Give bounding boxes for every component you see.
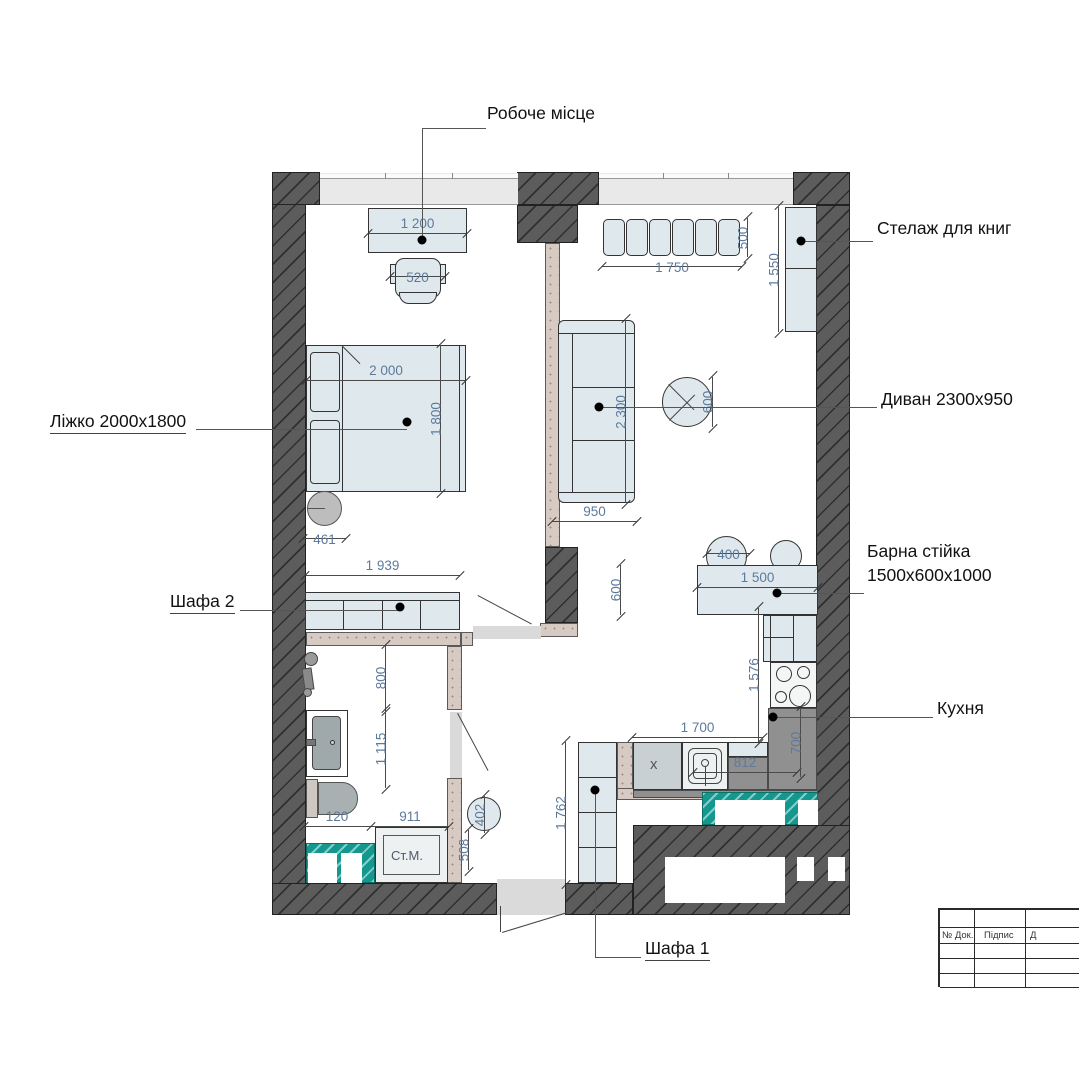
sink-tap-knob — [701, 759, 709, 767]
partition-kitchen-hall — [617, 742, 633, 792]
dim-table-diameter: 600 — [712, 377, 713, 427]
wardrobe-1-shelf — [578, 847, 617, 848]
dim-sofa-depth: 950 — [552, 521, 637, 522]
dim-shower: 800 — [385, 646, 386, 710]
leader-workplace-h — [422, 128, 486, 129]
dim-desk: 1 200 — [368, 233, 467, 234]
window-bench-cushion — [672, 219, 694, 256]
dim-chair: 520 — [390, 276, 445, 277]
washing-machine-label: Ст.М. — [391, 848, 423, 863]
sofa-armrest-bottom-line — [558, 492, 635, 493]
dim-bar-depth: 600 — [620, 565, 621, 615]
leader-bookshelf-dot — [797, 237, 806, 246]
title-block-line — [974, 910, 975, 987]
window-frame-tick — [728, 173, 729, 179]
dim-stool: 400 — [707, 553, 750, 554]
partition-bath-right-upper — [447, 646, 462, 710]
dim-bar-length: 1 500 — [697, 587, 818, 588]
kitchen-cabinet-divider — [770, 615, 771, 662]
bath-tile-opening-1 — [308, 853, 337, 883]
cooktop-burner — [797, 666, 810, 679]
wall-top-left — [272, 172, 320, 205]
window-bench-cushion — [626, 219, 648, 256]
dim-sofa-length: 2 300 — [625, 320, 626, 503]
bedroom-door-leaf — [478, 595, 532, 625]
dim-side-table: 461 — [303, 538, 346, 539]
wall-bottom-left — [272, 883, 497, 915]
title-block-line — [940, 987, 1079, 988]
label-wardrobe-1: Шафа 1 — [645, 938, 710, 961]
wardrobe-2-divider — [382, 600, 383, 630]
window-frame-tick — [663, 173, 664, 179]
wall-right — [816, 205, 850, 915]
cooktop-burner — [789, 685, 811, 707]
dim-bookshelf: 1 550 — [778, 207, 779, 332]
bath-tile-opening-2 — [341, 853, 362, 883]
leader-wardrobe-1-dot — [591, 786, 600, 795]
partition-bath-right-lower — [447, 778, 462, 883]
dim-kitchen-depth: 700 — [800, 708, 801, 777]
shower-mixer-knob — [303, 688, 312, 697]
wardrobe-2-divider — [343, 600, 344, 630]
dim-bench-length: 1 750 — [602, 266, 742, 267]
title-block-date-header: Д — [1030, 930, 1036, 941]
entry-door-threshold — [497, 879, 565, 915]
dim-kitchen-run: 1 576 — [758, 608, 759, 742]
leader-sofa-dot — [595, 403, 604, 412]
leader-sofa — [599, 407, 877, 408]
label-bed: Ліжко 2000х1800 — [50, 411, 186, 434]
leader-workplace-v — [422, 128, 423, 238]
partition-bath-top — [306, 632, 461, 646]
bookshelf — [785, 207, 817, 332]
title-block-line — [940, 927, 1079, 928]
dim-bed-width: 1 800 — [440, 345, 441, 492]
partition-stub-cap — [540, 623, 578, 637]
leader-bed — [196, 429, 407, 430]
window-frame-tick — [385, 173, 386, 179]
toilet-tank — [306, 779, 318, 818]
dim-wardrobe-1: 1 762 — [565, 742, 566, 883]
bath-door-threshold — [450, 712, 462, 778]
wall-pier-lower — [517, 205, 578, 243]
kitchen-tall-cabinet — [763, 615, 817, 662]
title-block-line — [1025, 910, 1026, 987]
wardrobe-2-divider — [420, 600, 421, 630]
wardrobe-1-shelf — [578, 812, 617, 813]
wardrobe-1-shelf — [578, 777, 617, 778]
label-workplace: Робоче місце — [487, 103, 595, 124]
leader-kitchen-dot — [769, 713, 778, 722]
dim-bath: 1 115 — [385, 710, 386, 788]
wall-left — [272, 172, 306, 915]
title-block-doc-header: № Док. — [942, 930, 973, 941]
entry-door-jamb — [500, 906, 501, 932]
kitchen-cabinet-shelf — [763, 637, 793, 638]
kitchen-cabinet-divider — [793, 615, 794, 662]
window-bench-cushion — [649, 219, 671, 256]
title-block-line — [940, 943, 1079, 944]
shower-mixer-head — [304, 652, 318, 666]
leader-bookshelf — [801, 241, 873, 242]
wall-bottom-mid — [565, 883, 633, 915]
bed-foot-line — [459, 345, 460, 492]
dim-wardrobe-2: 1 939 — [305, 575, 460, 576]
dim-bench-depth: 500 — [747, 218, 748, 257]
dim-kitchen-side: 812 — [693, 772, 797, 773]
leader-wardrobe-1-h — [595, 957, 641, 958]
label-bar-line2: 1500х600х1000 — [867, 565, 992, 586]
wall-stub-bedroom — [545, 547, 578, 623]
wall-niche-small-1 — [797, 857, 814, 881]
wall-niche-large — [665, 857, 785, 903]
window-living — [599, 173, 793, 205]
dim-bed-length: 2 000 — [306, 380, 466, 381]
leader-workplace-dot — [418, 236, 427, 245]
wall-top-pier — [517, 172, 599, 205]
window-bench-cushion — [603, 219, 625, 256]
leader-bed-dot — [403, 418, 412, 427]
title-block-sign-header: Підпис — [984, 930, 1014, 941]
leader-bar-dot — [773, 589, 782, 598]
dim-bath-combo: 120 911 — [304, 826, 449, 827]
leader-wardrobe-2-dot — [396, 603, 405, 612]
bath-sink-drain — [330, 740, 335, 745]
bed-headboard-line — [342, 345, 343, 492]
window-frame-tick — [452, 173, 453, 179]
bedside-table-handle — [307, 508, 325, 509]
title-block-line — [940, 973, 1079, 974]
dim-hall-table: 402 — [484, 796, 485, 833]
sofa-armrest-top-line — [558, 333, 635, 334]
bath-tap — [306, 739, 316, 746]
cabinet-x-mark: х — [650, 756, 658, 773]
leader-kitchen — [773, 717, 933, 718]
label-kitchen: Кухня — [937, 698, 984, 719]
sink-tap — [705, 764, 706, 786]
leader-bar — [777, 593, 864, 594]
cooktop-burner — [776, 666, 792, 682]
floor-plan: х Ст.М. 1 200 520 2 000 461 1 939 120 91… — [0, 0, 1080, 1080]
partition-door-jamb — [461, 632, 473, 646]
kitchen-tile-opening-1 — [715, 800, 785, 825]
dim-hall-depth: 508 — [468, 830, 469, 870]
label-sofa: Диван 2300х950 — [881, 389, 1013, 410]
leader-wardrobe-2 — [240, 610, 398, 611]
label-bar-line1: Барна стійка — [867, 541, 970, 562]
chair-back — [399, 292, 437, 304]
wall-top-right — [793, 172, 850, 205]
title-block: № Док. Підпис Д — [938, 908, 1079, 987]
window-bedroom — [320, 173, 518, 205]
entry-door-leaf — [502, 912, 566, 933]
sofa-back-line — [572, 333, 573, 492]
bedroom-door-threshold — [473, 626, 541, 639]
label-wardrobe-2: Шафа 2 — [170, 591, 235, 614]
kitchen-tile-opening-2 — [798, 800, 818, 825]
bath-sink — [312, 716, 341, 770]
dim-kitchen-length: 1 700 — [632, 737, 763, 738]
cooktop-burner — [775, 691, 787, 703]
window-bench-cushion — [695, 219, 717, 256]
label-bookshelf: Стелаж для книг — [877, 218, 1011, 239]
bookshelf-divider — [785, 268, 817, 269]
leader-wardrobe-1-v — [595, 790, 596, 957]
bed-pillow-1 — [310, 352, 340, 412]
wall-niche-small-2 — [828, 857, 845, 881]
title-block-line — [940, 958, 1079, 959]
